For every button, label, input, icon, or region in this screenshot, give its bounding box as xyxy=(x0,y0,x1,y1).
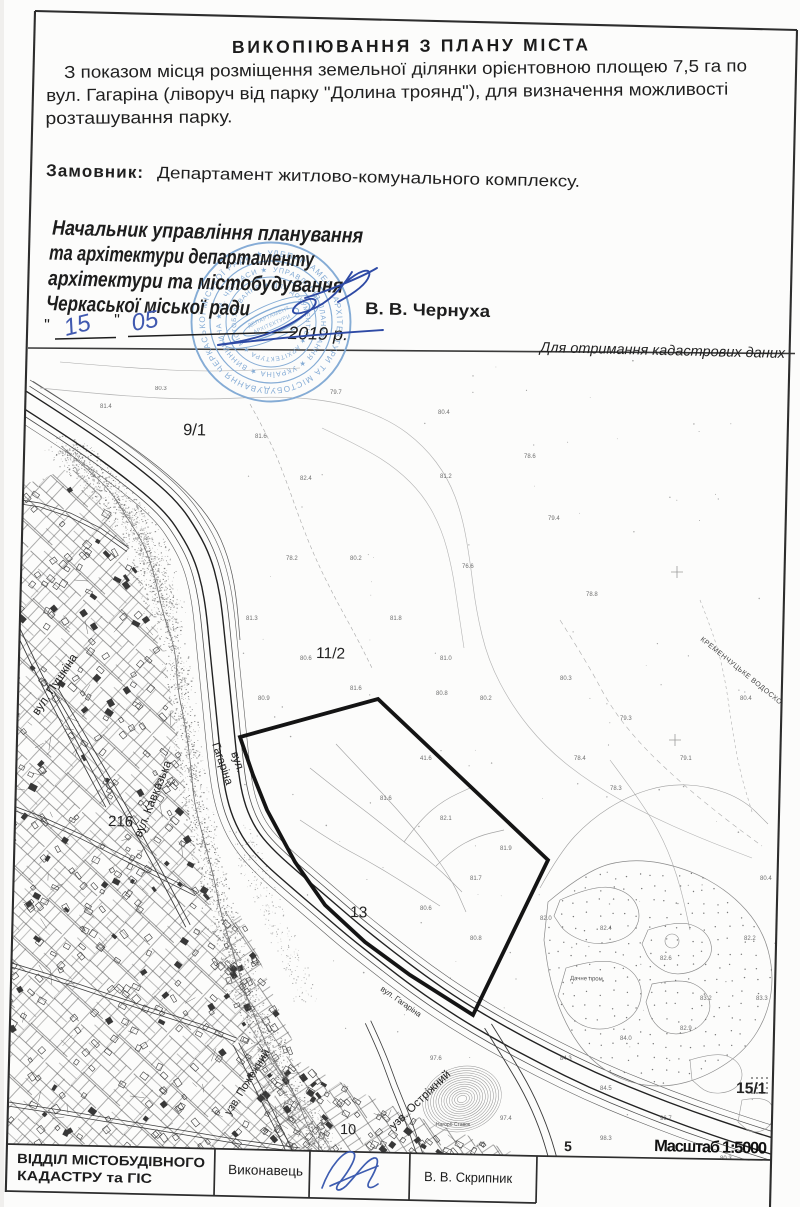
svg-text:80.8: 80.8 xyxy=(470,936,482,942)
svg-text:81.6: 81.6 xyxy=(380,796,392,802)
svg-text:В. В. Скрипник: В. В. Скрипник xyxy=(424,1169,512,1186)
svg-text:80.3: 80.3 xyxy=(560,676,572,682)
svg-text:КАДАСТРУ та ГІС: КАДАСТРУ та ГІС xyxy=(17,1168,153,1186)
svg-text:80.8: 80.8 xyxy=(436,691,448,697)
svg-text:84.0: 84.0 xyxy=(620,1036,632,1042)
svg-text:13: 13 xyxy=(350,904,368,921)
svg-text:98.3: 98.3 xyxy=(600,1136,612,1142)
svg-text:82.9: 82.9 xyxy=(680,1026,692,1032)
svg-text:Масштаб 1:5000: Масштаб 1:5000 xyxy=(654,1137,767,1158)
svg-text:78.2: 78.2 xyxy=(286,556,298,562)
svg-text:81.4: 81.4 xyxy=(100,404,112,410)
svg-text:80.4: 80.4 xyxy=(438,410,450,416)
svg-text:Виконавець: Виконавець xyxy=(228,1162,303,1179)
svg-text:5: 5 xyxy=(564,1138,572,1154)
svg-text:81.9: 81.9 xyxy=(500,846,512,852)
svg-text:80.6: 80.6 xyxy=(420,906,432,912)
svg-text:76.6: 76.6 xyxy=(462,564,474,570)
svg-text:82.0: 82.0 xyxy=(540,916,552,922)
svg-text:97.4: 97.4 xyxy=(500,1116,512,1122)
svg-text:81.8: 81.8 xyxy=(390,616,402,622)
svg-text:81.6: 81.6 xyxy=(255,434,267,440)
svg-text:81.0: 81.0 xyxy=(440,656,452,662)
svg-text:80.4: 80.4 xyxy=(760,876,772,882)
svg-text:78.6: 78.6 xyxy=(524,454,536,460)
svg-text:81.2: 81.2 xyxy=(440,474,452,480)
svg-text:В. В. Чернуха: В. В. Чернуха xyxy=(365,299,491,321)
svg-text:Дачне пром.: Дачне пром. xyxy=(570,976,605,983)
svg-text:9/1: 9/1 xyxy=(183,421,206,440)
svg-text:79.3: 79.3 xyxy=(620,716,632,722)
svg-text:": " xyxy=(44,317,50,334)
svg-text:79.1: 79.1 xyxy=(680,756,692,762)
svg-text:10: 10 xyxy=(340,1122,356,1138)
svg-text:Нагорб Ставок: Нагорб Ставок xyxy=(436,1122,471,1128)
svg-text:97.6: 97.6 xyxy=(430,1056,442,1062)
svg-text:79.4: 79.4 xyxy=(548,516,560,522)
svg-text:81.3: 81.3 xyxy=(246,616,258,622)
svg-text:80.3: 80.3 xyxy=(155,386,167,392)
svg-text:82.6: 82.6 xyxy=(660,956,672,962)
svg-text:78.8: 78.8 xyxy=(586,592,598,598)
svg-text:80.6: 80.6 xyxy=(300,656,312,662)
svg-text:81.6: 81.6 xyxy=(350,686,362,692)
svg-text:80.4: 80.4 xyxy=(740,696,752,702)
svg-text:79.7: 79.7 xyxy=(330,390,342,396)
svg-text:11/2: 11/2 xyxy=(316,645,345,663)
svg-text:78.4: 78.4 xyxy=(574,756,586,762)
svg-text:83.2: 83.2 xyxy=(700,996,712,1002)
svg-text:05: 05 xyxy=(129,306,161,337)
svg-text:96.7: 96.7 xyxy=(660,1116,672,1122)
svg-text:84.3: 84.3 xyxy=(560,1056,572,1062)
svg-text:83.3: 83.3 xyxy=(756,996,768,1002)
svg-text:Замовник:: Замовник: xyxy=(46,161,143,182)
svg-text:80.2: 80.2 xyxy=(480,696,492,702)
svg-text:80.9: 80.9 xyxy=(258,696,270,702)
svg-text:82.4: 82.4 xyxy=(300,476,312,482)
svg-text:82.1: 82.1 xyxy=(440,816,452,822)
svg-text:82.4: 82.4 xyxy=(600,926,612,932)
svg-text:82.2: 82.2 xyxy=(744,936,756,942)
svg-text:78.3: 78.3 xyxy=(610,786,622,792)
svg-text:80.2: 80.2 xyxy=(350,556,362,562)
svg-text:216: 216 xyxy=(108,813,133,831)
svg-text:15/1: 15/1 xyxy=(736,1080,767,1098)
svg-text:розташування парку.: розташування парку. xyxy=(45,106,232,128)
svg-text:81.7: 81.7 xyxy=(470,876,482,882)
svg-text:": " xyxy=(114,312,120,329)
svg-text:84.5: 84.5 xyxy=(600,1086,612,1092)
svg-text:41.6: 41.6 xyxy=(420,756,432,762)
